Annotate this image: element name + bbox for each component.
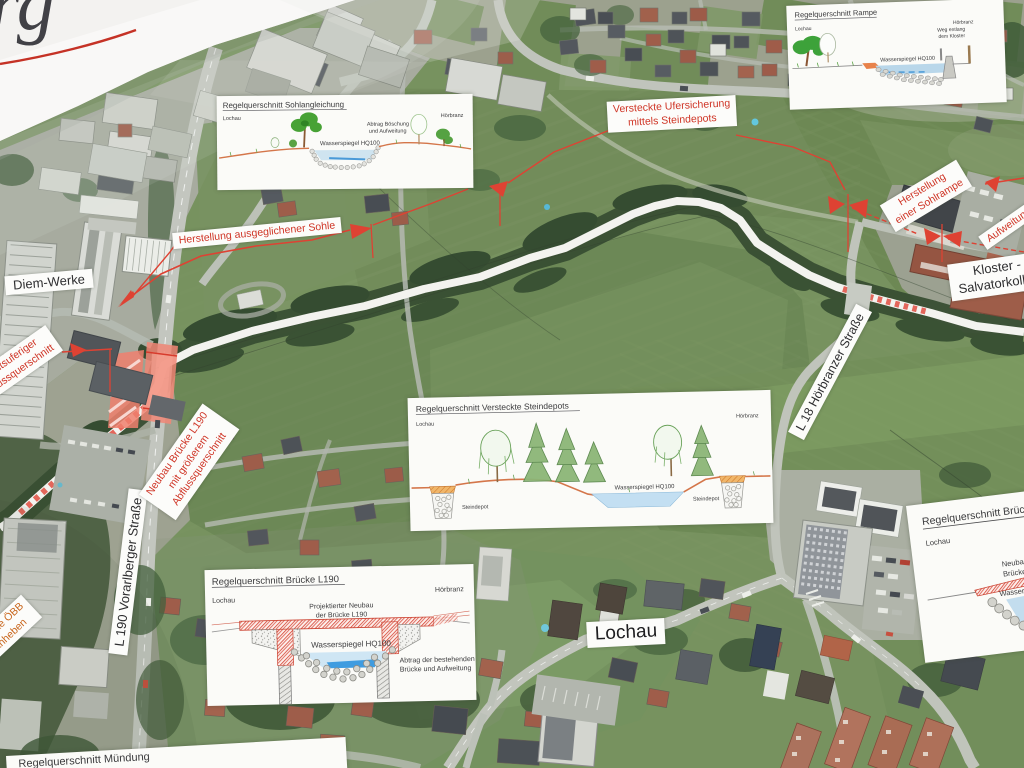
svg-text:Steindepot: Steindepot <box>462 504 489 511</box>
svg-text:Steindepot: Steindepot <box>693 496 720 503</box>
svg-text:Projektierter Neubau: Projektierter Neubau <box>309 602 373 610</box>
svg-text:Lochau: Lochau <box>925 536 951 548</box>
svg-text:Regelquerschnitt Versteckte St: Regelquerschnitt Versteckte Steindepots <box>416 400 569 413</box>
svg-text:Hörbranz: Hörbranz <box>435 586 464 594</box>
svg-text:Abtrag der bestehenden: Abtrag der bestehenden <box>400 656 475 665</box>
svg-text:Lochau: Lochau <box>416 422 434 428</box>
svg-text:Lochau: Lochau <box>212 597 235 605</box>
svg-text:Hörbranz: Hörbranz <box>736 413 759 420</box>
svg-text:und Aufweitung: und Aufweitung <box>369 128 407 134</box>
svg-text:Wasserspiegel HQ100: Wasserspiegel HQ100 <box>320 141 381 148</box>
svg-text:Wasserspiegel HQ100: Wasserspiegel HQ100 <box>311 639 391 650</box>
svg-text:Lochau: Lochau <box>223 116 241 122</box>
svg-text:Lochau: Lochau <box>795 26 812 33</box>
svg-text:dem Kloster: dem Kloster <box>938 33 965 40</box>
svg-text:Regelquerschnitt Sohlangleichu: Regelquerschnitt Sohlangleichung <box>223 100 344 110</box>
svg-text:Wasserspiegel HQ100: Wasserspiegel HQ100 <box>615 484 676 491</box>
svg-text:Wasserspiegel HQ100: Wasserspiegel HQ100 <box>880 56 935 64</box>
svg-text:Abtrag Böschung: Abtrag Böschung <box>367 121 409 127</box>
svg-text:Brücke und Aufweitung: Brücke und Aufweitung <box>400 665 472 674</box>
svg-text:Hörbranz: Hörbranz <box>953 19 974 26</box>
svg-text:Regelquerschnitt Brücke L: Regelquerschnitt Brücke L <box>921 501 1024 528</box>
svg-text:Hörbranz: Hörbranz <box>441 113 464 119</box>
